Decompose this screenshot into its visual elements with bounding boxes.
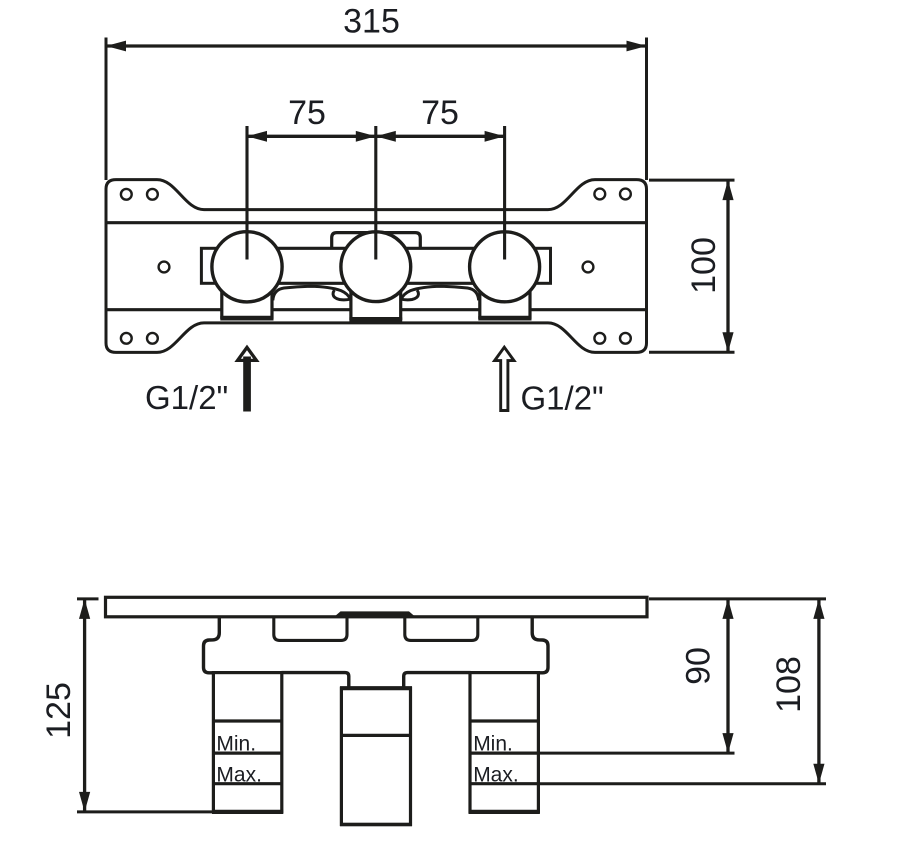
svg-text:75: 75	[421, 94, 459, 132]
svg-text:125: 125	[40, 682, 78, 739]
svg-text:315: 315	[343, 3, 400, 41]
svg-text:Max.: Max.	[473, 763, 519, 786]
svg-text:G1/2": G1/2"	[145, 379, 228, 416]
svg-text:Max.: Max.	[216, 763, 262, 786]
svg-text:90: 90	[679, 647, 717, 685]
svg-text:G1/2": G1/2"	[521, 380, 604, 417]
svg-text:75: 75	[288, 94, 326, 132]
svg-text:108: 108	[770, 656, 808, 713]
svg-text:100: 100	[685, 237, 723, 294]
svg-text:Min.: Min.	[216, 733, 256, 756]
svg-text:Min.: Min.	[473, 733, 513, 756]
